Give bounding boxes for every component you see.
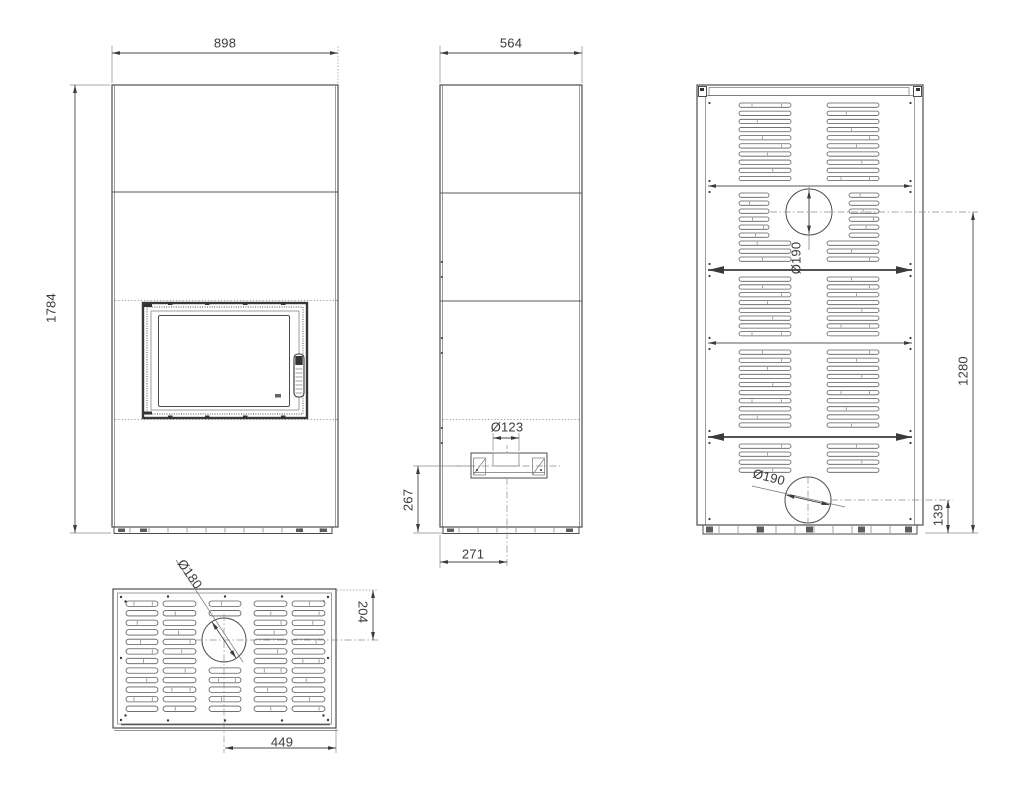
dim-front-width: 898 [214,37,236,50]
brand-mark [275,394,281,398]
dim-intake-center-height: 267 [402,489,415,511]
dim-side-depth: 564 [500,37,522,50]
side-view [413,46,582,568]
back-view [697,85,978,534]
front-view [70,46,338,534]
drawing-sheet: 898 1784 564 Ø123 267 271 Ø190 1280 Ø190… [0,0,1024,786]
dim-intake-diameter: Ø123 [491,421,524,434]
dim-upper-flue-diameter: Ø190 [790,242,803,275]
drawing-canvas [0,0,1024,786]
dim-top-flue-from-rear: 204 [357,601,370,623]
dim-top-flue-from-side: 449 [271,736,293,749]
dim-front-height: 1784 [45,293,58,323]
dim-intake-center-offset: 271 [462,548,484,561]
dim-upper-flue-center-height: 1280 [957,356,970,386]
top-view [113,560,378,753]
dim-lower-flue-center-height: 139 [932,504,945,526]
